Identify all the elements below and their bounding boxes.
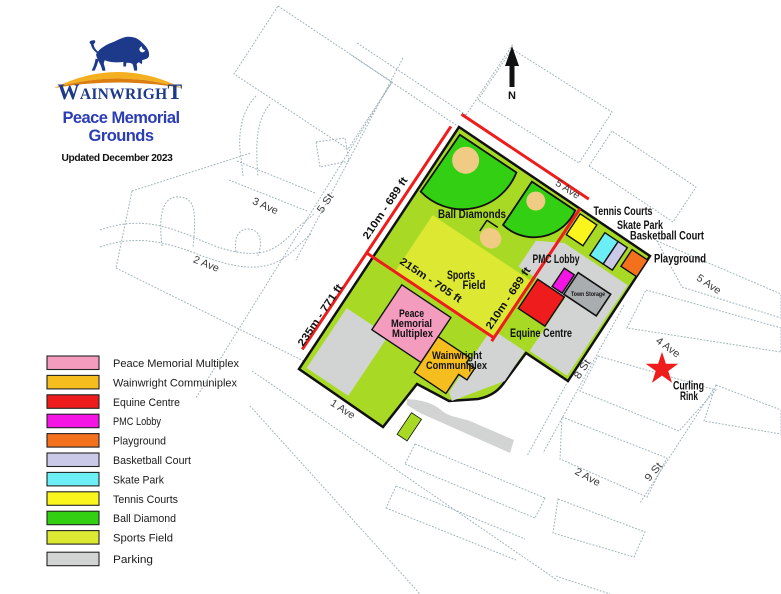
svg-text:Town Storage: Town Storage bbox=[571, 291, 605, 298]
svg-text:N: N bbox=[508, 90, 516, 102]
svg-text:Rink: Rink bbox=[680, 389, 698, 403]
svg-text:Updated December 2023: Updated December 2023 bbox=[62, 153, 174, 164]
svg-text:Basketball Court: Basketball Court bbox=[113, 455, 192, 467]
svg-text:Tennis Courts: Tennis Courts bbox=[594, 204, 653, 218]
svg-text:Communiplex: Communiplex bbox=[426, 360, 488, 372]
svg-text:Wainwright Communiplex: Wainwright Communiplex bbox=[113, 377, 237, 389]
svg-text:Playground: Playground bbox=[654, 252, 706, 266]
svg-text:PMC Lobby: PMC Lobby bbox=[533, 252, 580, 266]
svg-text:Ball Diamonds: Ball Diamonds bbox=[438, 207, 506, 221]
svg-text:Skate Park: Skate Park bbox=[113, 474, 164, 486]
svg-text:Equine Centre: Equine Centre bbox=[510, 326, 572, 340]
svg-text:Peace Memorial Multiplex: Peace Memorial Multiplex bbox=[113, 358, 239, 370]
svg-text:Peace Memorial: Peace Memorial bbox=[62, 109, 179, 127]
svg-text:Ball Diamond: Ball Diamond bbox=[113, 513, 176, 525]
svg-text:Field: Field bbox=[463, 278, 486, 292]
svg-text:Parking: Parking bbox=[113, 554, 153, 566]
svg-text:Tennis Courts: Tennis Courts bbox=[113, 494, 178, 506]
svg-text:PMC Lobby: PMC Lobby bbox=[113, 416, 161, 428]
svg-text:Playground: Playground bbox=[113, 436, 166, 448]
svg-text:Grounds: Grounds bbox=[89, 127, 154, 145]
svg-text:Sports Field: Sports Field bbox=[113, 533, 173, 545]
svg-text:Multiplex: Multiplex bbox=[392, 328, 434, 340]
svg-text:Equine Centre: Equine Centre bbox=[113, 397, 180, 409]
svg-text:Basketball Court: Basketball Court bbox=[630, 229, 704, 243]
